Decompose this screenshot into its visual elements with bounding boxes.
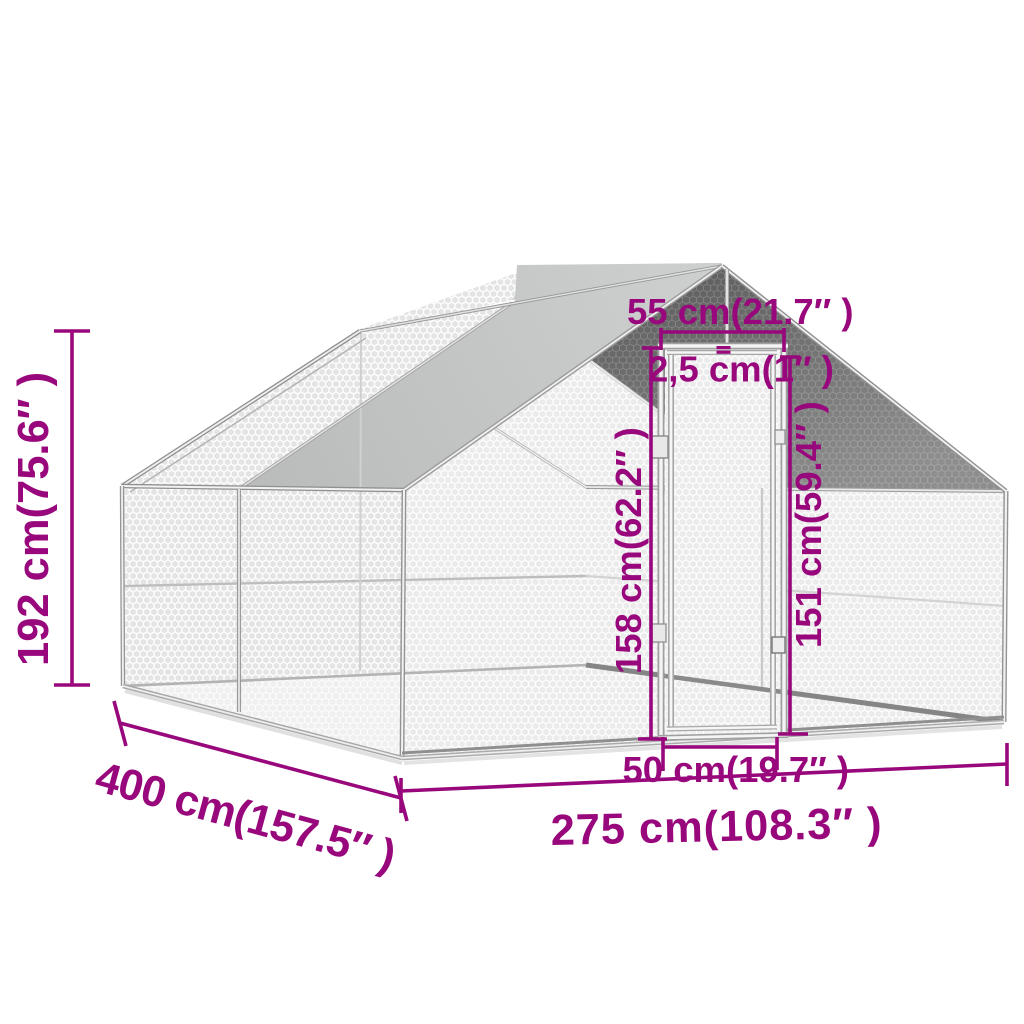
svg-text:158 cm(62.2″ ): 158 cm(62.2″ ) — [608, 427, 649, 674]
svg-text:275 cm(108.3″ ): 275 cm(108.3″ ) — [550, 799, 883, 855]
svg-text:55 cm(21.7″ ): 55 cm(21.7″ ) — [627, 291, 853, 332]
svg-text:192 cm(75.6″ ): 192 cm(75.6″ ) — [10, 372, 58, 666]
svg-text:2,5 cm(1″ ): 2,5 cm(1″ ) — [648, 349, 834, 390]
svg-text:50 cm(19.7″ ): 50 cm(19.7″ ) — [623, 749, 849, 790]
svg-text:151 cm(59.4″ ): 151 cm(59.4″ ) — [788, 401, 829, 648]
